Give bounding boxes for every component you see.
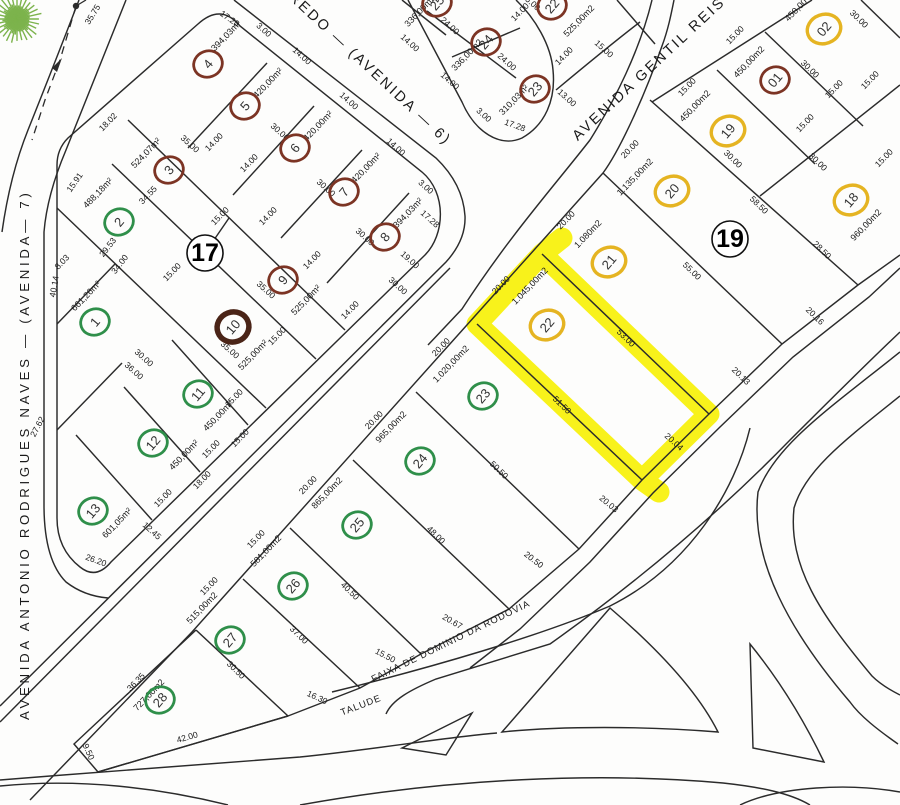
svg-text:19: 19	[716, 225, 744, 253]
svg-text:17: 17	[191, 239, 219, 267]
svg-text:AVENIDA ANTONIO RODRIGUES NAVE: AVENIDA ANTONIO RODRIGUES NAVES — (AVENI…	[17, 190, 32, 720]
